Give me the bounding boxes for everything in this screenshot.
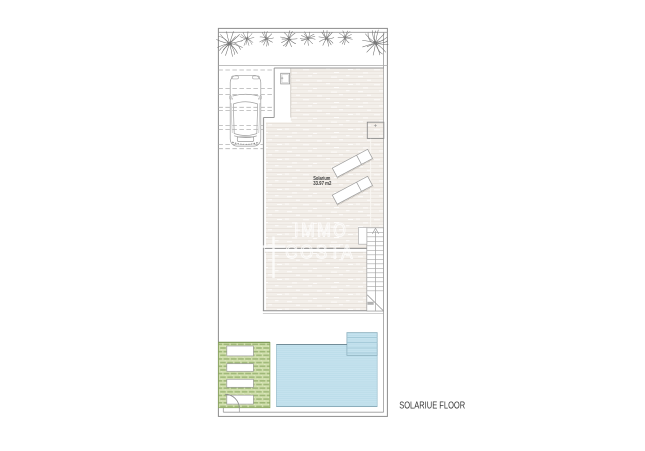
svg-text:IMMO: IMMO: [294, 220, 349, 241]
svg-text:COSTA: COSTA: [285, 243, 355, 264]
svg-text:SOLARIUE FLOOR: SOLARIUE FLOOR: [399, 401, 465, 412]
svg-text:33.97 m2: 33.97 m2: [313, 181, 331, 187]
